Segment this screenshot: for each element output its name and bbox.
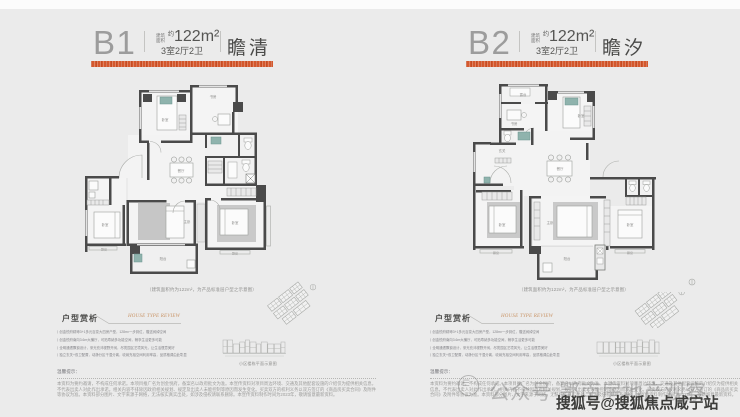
svg-text:卧室: 卧室 (102, 222, 109, 227)
svg-text:玄关: 玄关 (499, 148, 506, 153)
svg-text:卧室: 卧室 (162, 117, 169, 122)
svg-text:卧室: 卧室 (499, 222, 506, 227)
svg-text:卧室: 卧室 (578, 113, 585, 118)
svg-text:餐厅: 餐厅 (557, 166, 564, 171)
svg-text:阳台: 阳台 (160, 256, 167, 261)
svg-text:露台: 露台 (520, 92, 527, 97)
svg-text:主卧: 主卧 (184, 219, 191, 224)
svg-text:书房: 书房 (210, 94, 217, 99)
svg-text:阳台: 阳台 (564, 256, 571, 261)
svg-text:飘窗: 飘窗 (493, 250, 499, 255)
svg-text:卧室: 卧室 (627, 222, 634, 227)
svg-text:卧室: 卧室 (232, 220, 239, 225)
svg-text:主卧: 主卧 (547, 220, 554, 225)
svg-text:书房: 书房 (511, 121, 518, 126)
svg-text:飘窗: 飘窗 (101, 247, 107, 252)
svg-text:飘窗: 飘窗 (232, 251, 238, 256)
svg-text:餐厅: 餐厅 (178, 168, 185, 173)
svg-text:飘窗: 飘窗 (627, 250, 633, 255)
